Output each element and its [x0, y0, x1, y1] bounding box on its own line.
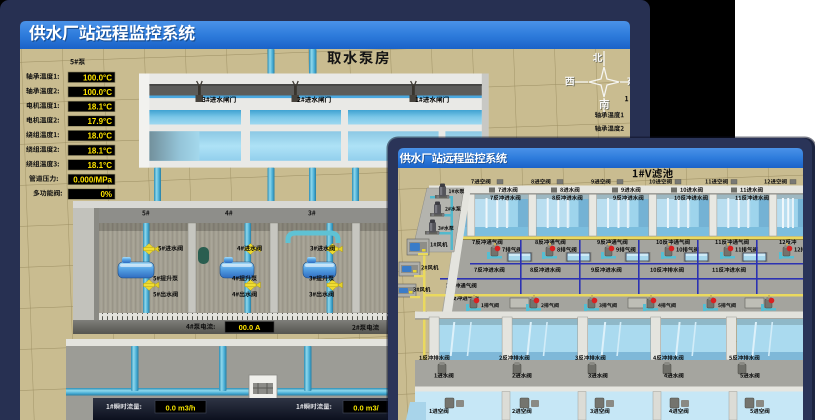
svg-text:0%: 0% [100, 190, 112, 199]
svg-text:17.9°C: 17.9°C [87, 117, 112, 126]
svg-text:100.0°C: 100.0°C [83, 88, 112, 97]
svg-text:00.0 A: 00.0 A [239, 323, 261, 332]
svg-text:18.0°C: 18.0°C [87, 132, 112, 141]
svg-text:0.0 m3/: 0.0 m3/ [353, 403, 379, 412]
svg-text:0.000/MPa: 0.000/MPa [73, 176, 112, 185]
svg-text:18.1°C: 18.1°C [87, 146, 112, 155]
svg-text:18.1°C: 18.1°C [87, 103, 112, 112]
svg-text:100.0°C: 100.0°C [83, 73, 112, 82]
svg-text:18.1°C: 18.1°C [87, 161, 112, 170]
svg-text:0.0 m3/h: 0.0 m3/h [165, 403, 195, 412]
